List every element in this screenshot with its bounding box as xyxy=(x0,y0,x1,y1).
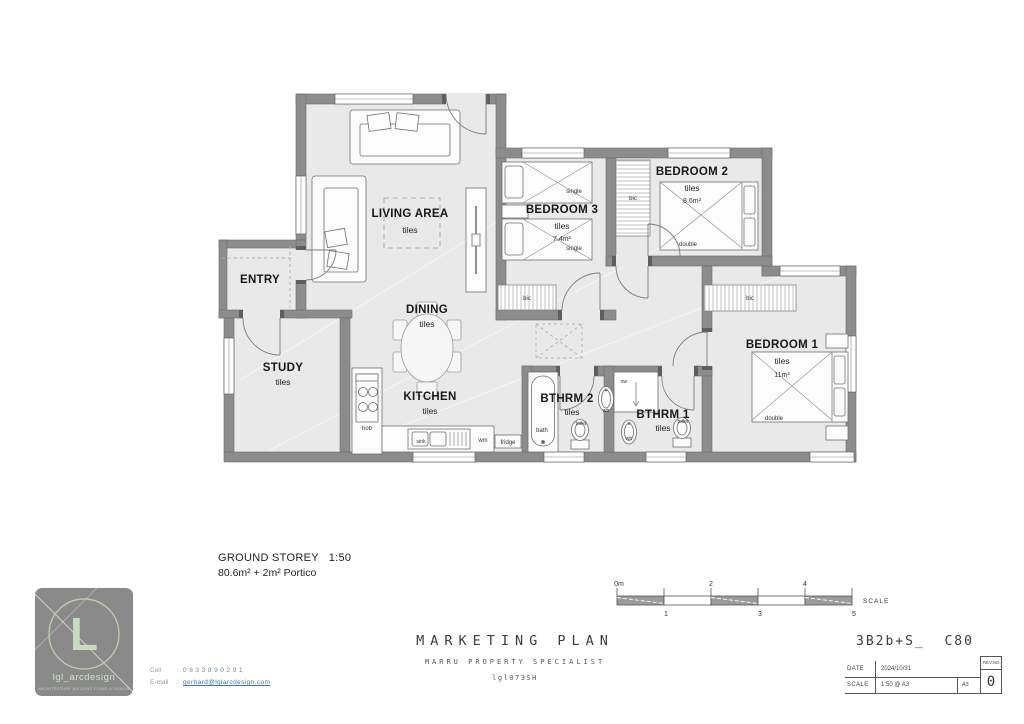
room-area-bedroom2: 8.6m² xyxy=(683,198,702,205)
room-finish-bthrm1: tiles xyxy=(655,423,670,433)
room-label-bedroom2: BEDROOM 2 xyxy=(656,166,728,178)
scale-tick-2: 2 xyxy=(709,581,713,588)
email-separator: : xyxy=(173,679,183,686)
cell-label: Cell xyxy=(150,667,173,674)
revision-number: 0 xyxy=(981,674,1001,690)
drawing-sheet: LIVING AREA tiles ENTRY STUDY tiles DINI… xyxy=(0,0,1024,724)
scale-bar-segments xyxy=(617,588,852,605)
fixture-label-single: single xyxy=(566,189,582,195)
cell-number: 0833890291 xyxy=(183,667,245,674)
fixture-label-toilet: toilet xyxy=(678,419,690,425)
titleblock-line xyxy=(875,661,876,693)
pedestal-bed3 xyxy=(502,205,528,218)
logo-tagline: ARCHITECTURE BUILDING PLANS & DESIGN xyxy=(38,687,129,691)
fixture-label-toilet: toilet xyxy=(576,421,588,427)
room-area-bedroom3: 7.4m² xyxy=(553,236,572,243)
room-finish-study: tiles xyxy=(275,377,290,387)
scale-tick-0: 0m xyxy=(614,581,624,588)
fixture-label-double: double xyxy=(679,242,698,248)
fixture-label-wm: wm xyxy=(477,438,487,444)
fixture-label-wb: wb xyxy=(626,436,633,442)
bed-single-2 xyxy=(502,219,592,260)
room-label-study: STUDY xyxy=(263,362,304,374)
room-label-bedroom1: BEDROOM 1 xyxy=(746,339,819,351)
sofa-2seat xyxy=(312,176,366,282)
paper-size: A3 xyxy=(962,682,969,688)
room-finish-bedroom3: tiles xyxy=(554,221,569,231)
plan-caption-area: 80.6m² + 2m² Portico xyxy=(218,567,351,579)
company-line: MARRU PROPERTY SPECIALIST xyxy=(362,658,668,666)
room-label-bedroom3: BEDROOM 3 xyxy=(526,204,598,216)
revision-divider xyxy=(981,669,1001,670)
email-label: E-mail xyxy=(150,679,173,686)
plan-caption: GROUND STOREY 1:50 80.6m² + 2m² Portico xyxy=(218,552,351,579)
cell-separator: : xyxy=(173,667,183,674)
fixture-label-sink: sink xyxy=(416,439,426,445)
bed-single-1 xyxy=(502,162,592,203)
scale-tick-1: 1 xyxy=(664,611,668,618)
room-finish-kitchen: tiles xyxy=(422,406,437,416)
scale-bar-label: SCALE xyxy=(863,598,889,605)
date-value: 2024/10/31 xyxy=(881,666,911,672)
room-area-bedroom1: 11m² xyxy=(774,372,790,379)
contact-block: Cell:0833890291 E-mail:gerhard@lglarcdes… xyxy=(150,667,270,691)
revision-label: REV.NO. xyxy=(983,661,999,666)
room-finish-dining: tiles xyxy=(419,319,434,329)
logo-brand-name: lgl_arcdesign xyxy=(53,672,115,683)
contact-cell-row: Cell:0833890291 xyxy=(150,667,270,674)
floor-plan: LIVING AREA tiles ENTRY STUDY tiles DINI… xyxy=(200,80,880,480)
bed-double-bedroom2 xyxy=(660,182,758,250)
bath xyxy=(528,372,558,452)
scale-value: 1:50 @ A3 xyxy=(881,682,909,688)
tv-unit xyxy=(466,188,486,292)
room-finish-bedroom2: tiles xyxy=(684,183,699,193)
revision-box: REV.NO. 0 xyxy=(980,656,1002,694)
room-finish-living: tiles xyxy=(402,225,417,235)
room-label-kitchen: KITCHEN xyxy=(403,391,456,403)
fixture-label-bic: bic xyxy=(629,196,637,202)
fixture-label-double: double xyxy=(765,416,784,422)
fixture-label-fridge: fridge xyxy=(500,440,516,446)
scale-bar: 0m 2 4 1 3 5 SCALE xyxy=(605,580,905,622)
fixture-label-bic: bic xyxy=(746,296,754,302)
scale-tick-5: 5 xyxy=(852,611,856,618)
fixture-label-single: single xyxy=(566,246,582,252)
drawing-code: lgl073SH xyxy=(362,674,668,682)
room-label-entry: ENTRY xyxy=(240,274,280,286)
scale-tick-3: 3 xyxy=(758,611,762,618)
titleblock-line xyxy=(957,677,958,693)
fixture-label-hob: hob xyxy=(362,426,373,432)
scale-tick-4: 4 xyxy=(803,581,807,588)
titleblock-line xyxy=(845,677,981,678)
fixture-label-bath: bath xyxy=(536,428,548,434)
room-finish-bthrm2: tiles xyxy=(564,407,579,417)
date-label: DATE xyxy=(847,666,864,672)
room-label-bthrm2: BTHRM 2 xyxy=(540,393,593,405)
room-finish-bedroom1: tiles xyxy=(774,356,789,366)
contact-email-row: E-mail:gerhard@lglarcdesign.com xyxy=(150,679,270,686)
room-label-living: LIVING AREA xyxy=(372,208,449,220)
company-logo: L lgl_arcdesign ARCHITECTURE BUILDING PL… xyxy=(35,588,133,696)
fixture-label-sw: sw xyxy=(621,379,628,385)
title-block-center: MARKETING PLAN MARRU PROPERTY SPECIALIST… xyxy=(362,633,668,682)
shower xyxy=(614,372,658,412)
plan-caption-title: GROUND STOREY 1:50 xyxy=(218,552,351,564)
sheet-title: MARKETING PLAN xyxy=(362,633,668,649)
titleblock-line xyxy=(845,693,981,694)
room-label-dining: DINING xyxy=(406,304,448,316)
logo-monogram: L xyxy=(70,608,98,660)
model-code: 3B2b+S_ C80 xyxy=(856,634,1006,649)
fixture-label-bic: bic xyxy=(523,296,531,302)
scale-label: SCALE xyxy=(847,682,869,688)
fixture-label-wb: wb xyxy=(603,408,610,414)
sofa-3seat xyxy=(350,110,460,164)
email-link[interactable]: gerhard@lglarcdesign.com xyxy=(183,679,270,686)
